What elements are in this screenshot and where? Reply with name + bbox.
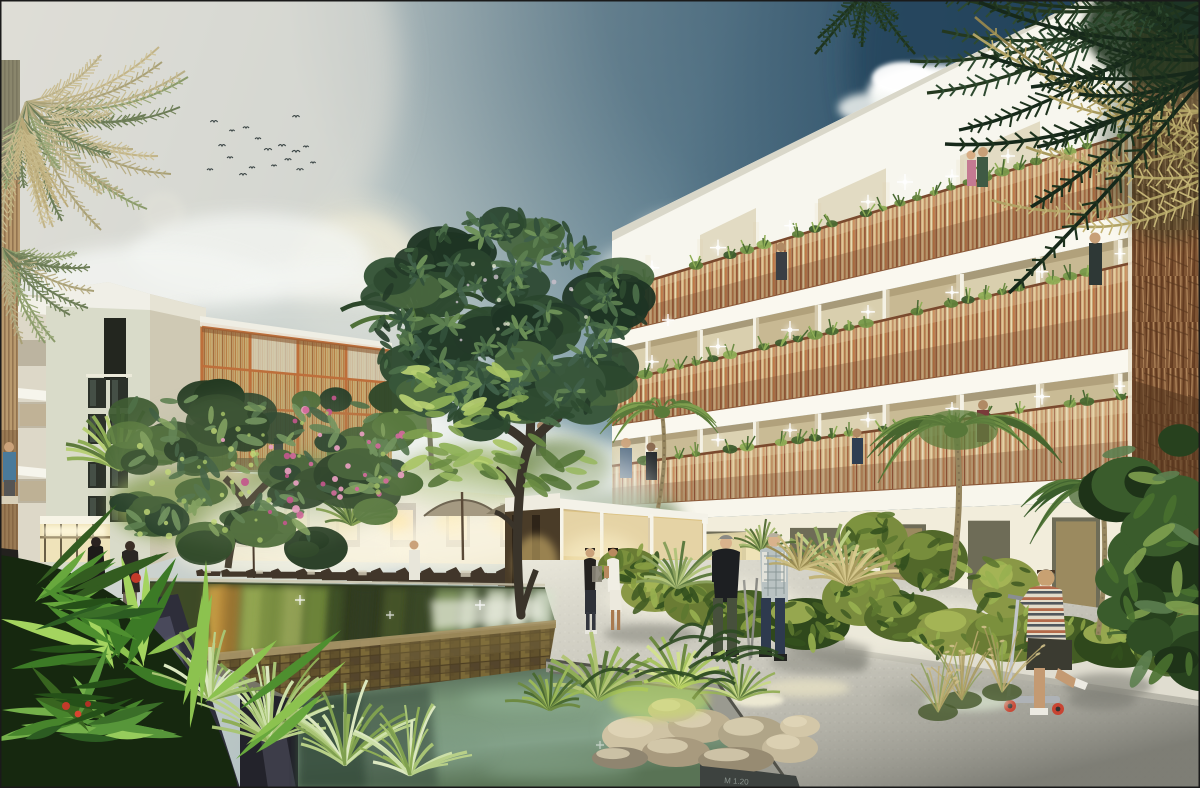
svg-text:M 1.20: M 1.20 xyxy=(724,776,750,787)
